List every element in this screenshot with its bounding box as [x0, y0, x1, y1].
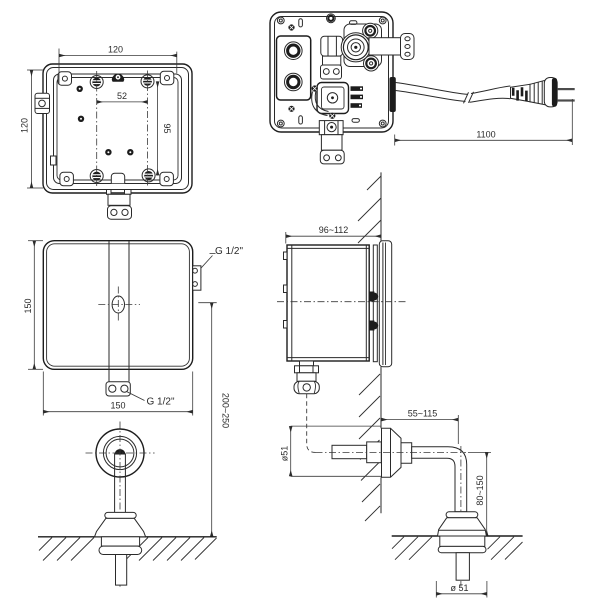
svg-text:1100: 1100	[476, 129, 495, 139]
svg-text:200~250: 200~250	[220, 393, 230, 428]
svg-text:55~115: 55~115	[408, 408, 438, 418]
svg-text:G 1/2": G 1/2"	[147, 397, 175, 408]
svg-text:ø51: ø51	[279, 446, 289, 462]
svg-text:52: 52	[117, 91, 127, 101]
svg-text:120: 120	[20, 118, 30, 133]
svg-text:150: 150	[23, 298, 33, 313]
svg-text:96~112: 96~112	[319, 225, 349, 235]
svg-text:ø 51: ø 51	[450, 583, 468, 593]
svg-text:G 1/2": G 1/2"	[215, 246, 243, 257]
svg-text:80~150: 80~150	[475, 475, 485, 505]
svg-text:150: 150	[110, 400, 125, 410]
svg-text:95: 95	[162, 123, 172, 133]
svg-text:120: 120	[108, 45, 123, 55]
